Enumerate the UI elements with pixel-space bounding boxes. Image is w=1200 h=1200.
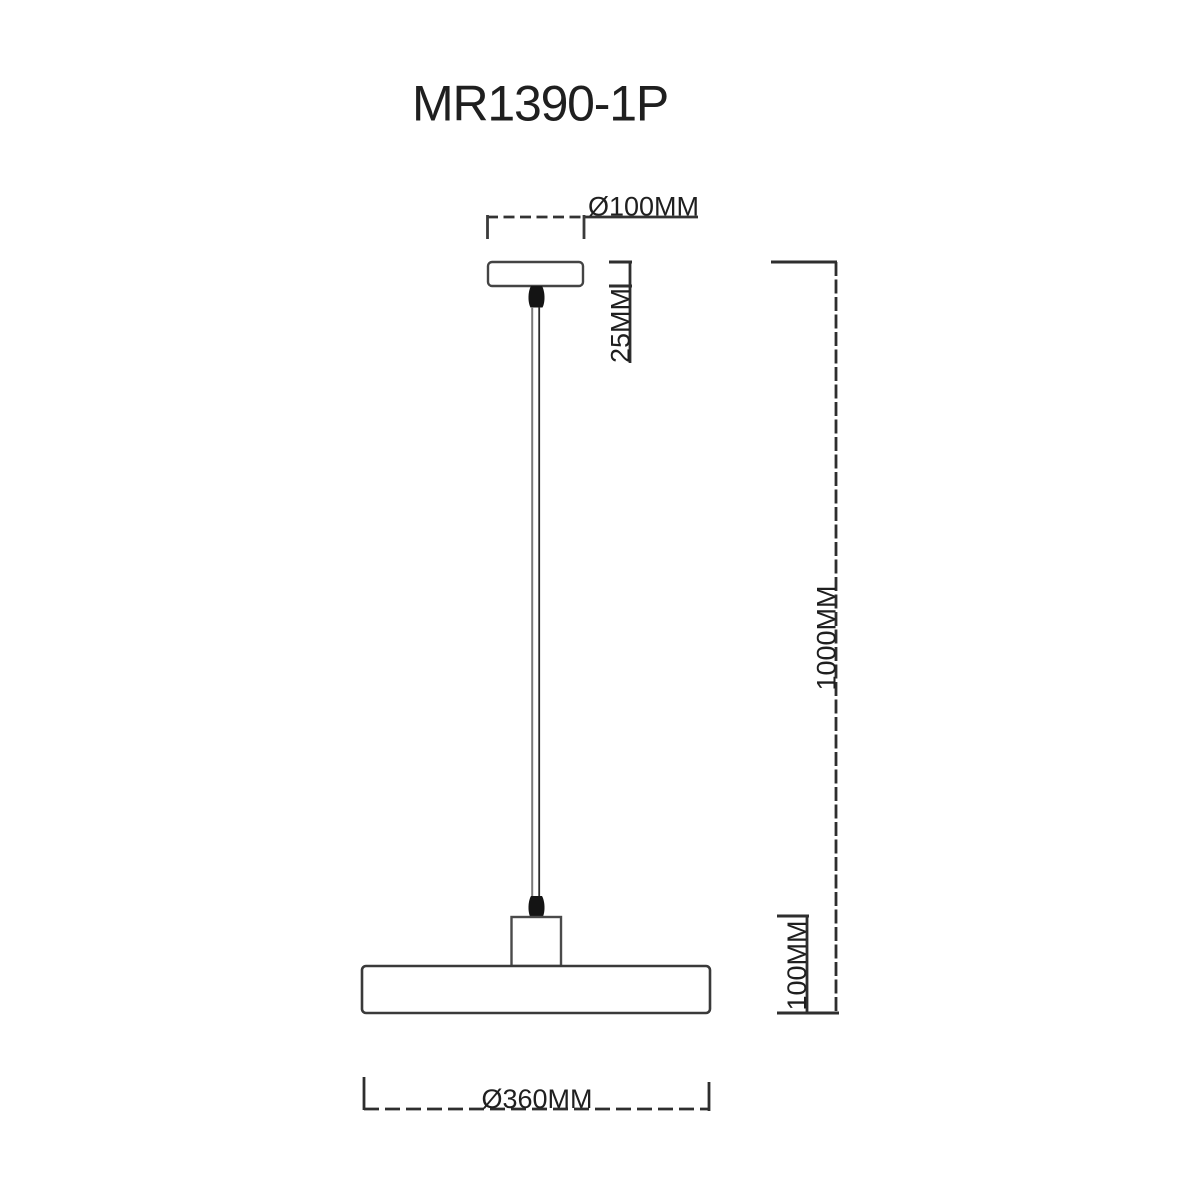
svg-text:100MM: 100MM bbox=[782, 920, 812, 1010]
svg-text:Ø100MM: Ø100MM bbox=[588, 192, 699, 222]
svg-text:1000MM: 1000MM bbox=[812, 585, 842, 690]
svg-text:MR1390-1P: MR1390-1P bbox=[412, 76, 668, 132]
svg-text:25MM: 25MM bbox=[606, 288, 636, 363]
svg-text:Ø360MM: Ø360MM bbox=[481, 1084, 592, 1114]
